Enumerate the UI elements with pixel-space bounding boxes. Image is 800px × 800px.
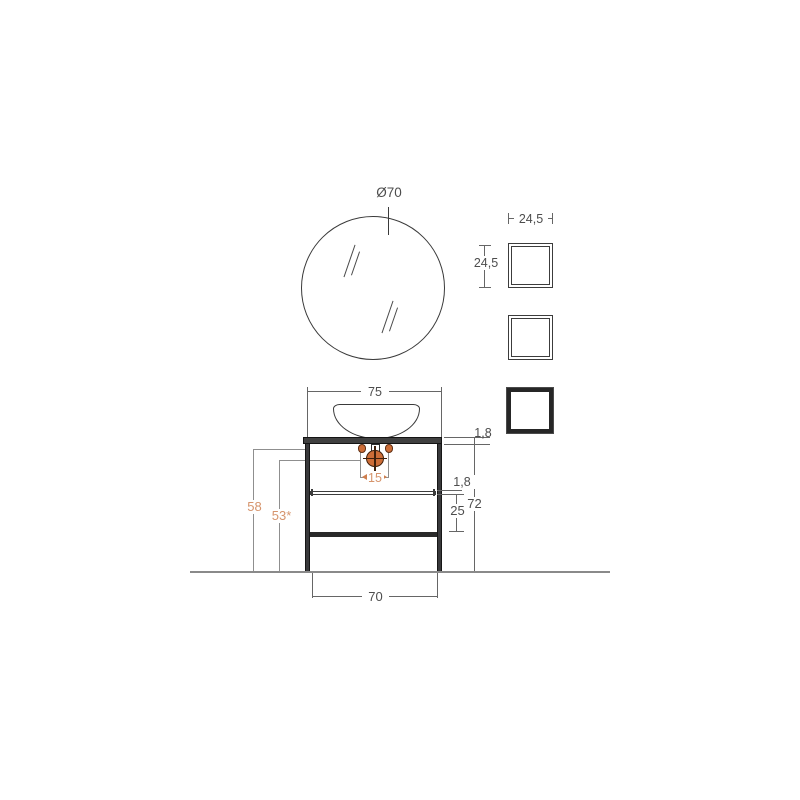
mirror-diameter-leader-line [388,207,389,235]
wall-box-inner-frame [511,318,550,357]
right-leg [437,444,443,572]
box-height-dim-tick [479,287,491,288]
fixing-hole-dot-left [358,444,367,453]
shelf-end-cap [311,489,313,496]
shelf-to-base-dim-tick [449,531,464,532]
drain-height-label: 53* [267,509,296,523]
holes-spacing-dim-vline [388,452,389,478]
box-height-label: 24,5 [470,256,502,270]
wall-box-middle [508,315,553,360]
mirror-diameter-label: Ø70 [365,186,413,200]
shelf-end-cap [433,489,435,496]
box-width-dim-tick [552,213,553,224]
drain-height-dim-hline [279,460,360,461]
holes-height-dim-hline [253,449,308,450]
shelf-thickness-extension-line [437,490,462,491]
washbasin-bowl [333,404,420,439]
round-mirror [301,216,445,360]
base-width-extension-line [312,573,313,598]
fixing-hole-dot-right [385,444,394,453]
shelf-thickness-label: 1,8 [449,475,475,489]
bottom-rail [310,532,437,538]
shelf-to-base-dim-tick [449,494,464,495]
base-width-extension-line [437,573,438,598]
box-width-label: 24,5 [514,212,548,226]
base-width-label: 70 [362,590,389,604]
box-height-dim-tick [479,245,491,246]
box-width-dim-tick [508,213,509,224]
drain-crosshair-vertical [374,446,375,471]
floor-line [190,571,610,574]
technical-drawing-canvas: Ø70 24,5 24,5 75 15 58 53* [0,0,800,800]
shelf [310,491,436,496]
shelf-to-base-label: 25 [446,504,469,518]
top-thickness-extension-line [444,444,490,445]
top-width-extension-line [441,387,442,437]
top-width-label: 75 [361,385,389,399]
holes-height-label: 58 [243,500,266,514]
top-width-extension-line [307,387,308,437]
holes-spacing-label: 15 [367,471,384,485]
left-leg [305,444,311,572]
wall-box-top [508,243,553,288]
wall-box-inner-frame [511,246,550,285]
wall-box-bottom-dark [507,388,553,433]
